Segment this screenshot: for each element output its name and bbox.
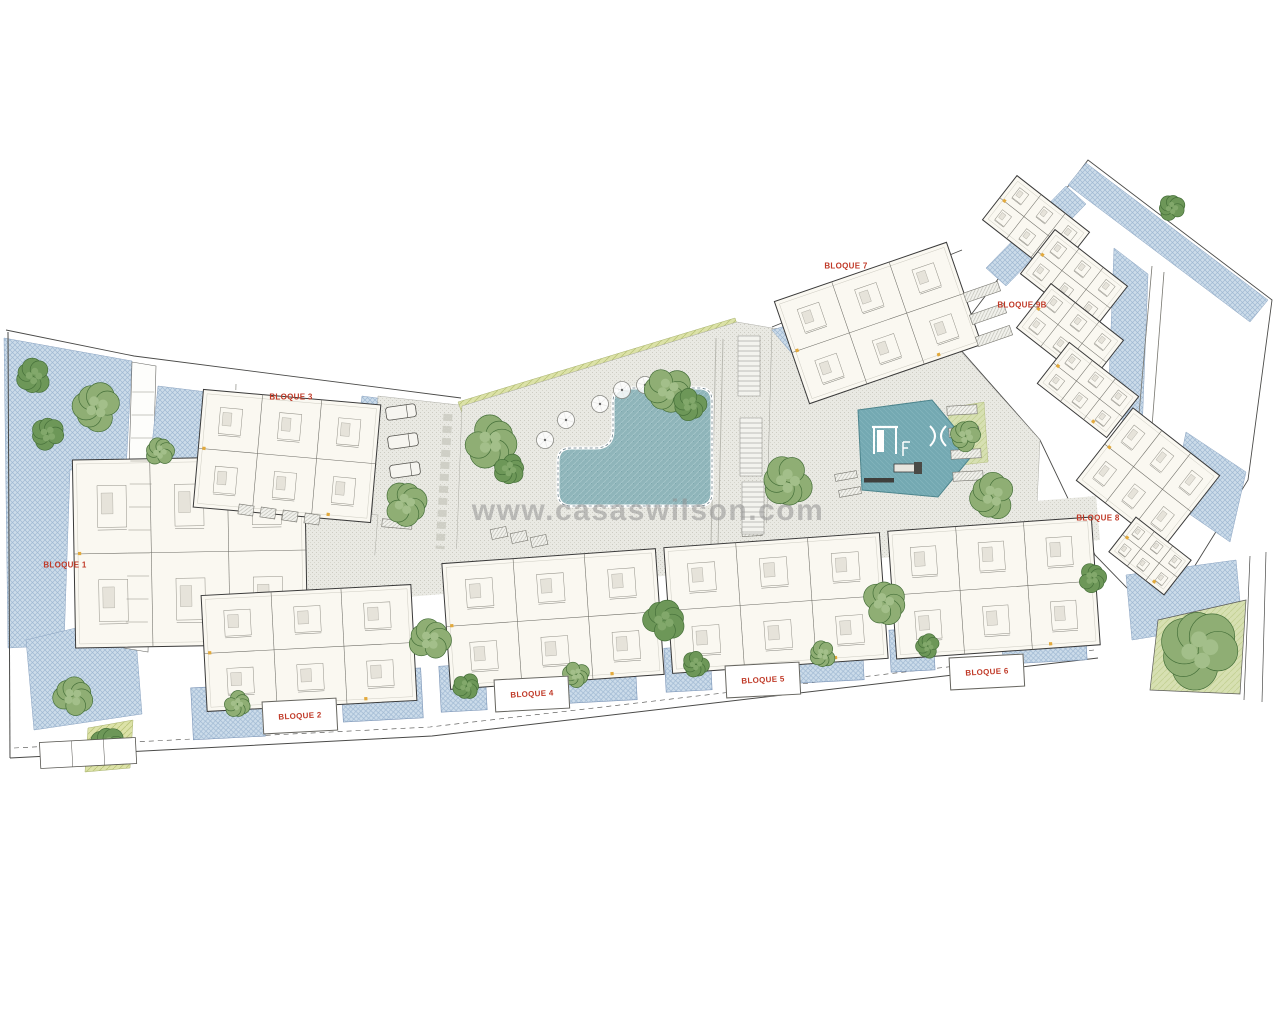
tree [810, 641, 835, 667]
site-plan-canvas: www.casaswilson.com BLOQUE 1 BLOQUE 2 BL… [0, 0, 1280, 1024]
bench [238, 504, 254, 516]
bloque-6-label: BLOQUE 6 [949, 654, 1026, 691]
bench [304, 513, 320, 525]
bloque-7-label: BLOQUE 7 [824, 262, 867, 271]
bloque-2-label: BLOQUE 2 [262, 698, 339, 735]
bloque-5-label: BLOQUE 5 [725, 662, 802, 699]
bloque-8-label: BLOQUE 8 [1076, 514, 1119, 523]
tree [409, 619, 451, 658]
bloque-3-label: BLOQUE 3 [269, 393, 312, 402]
bench [947, 405, 977, 416]
stairs [738, 336, 760, 396]
stairs [740, 418, 762, 476]
tree [453, 674, 479, 699]
bench [282, 510, 298, 522]
watermark: www.casaswilson.com [472, 494, 825, 528]
apartment-building [193, 389, 381, 522]
tree [1079, 564, 1106, 593]
parasol [536, 431, 553, 448]
bloque-1-label: BLOQUE 1 [43, 561, 86, 570]
bloque-4-label: BLOQUE 4 [494, 676, 571, 713]
bench [260, 507, 276, 519]
parking-bay [39, 738, 136, 769]
parasol [557, 411, 574, 428]
tree [1159, 196, 1184, 221]
apartment-building [442, 549, 664, 690]
parasol [613, 381, 630, 398]
parking-plaza [370, 396, 468, 565]
parasol [591, 395, 608, 412]
bloque-9-label: BLOQUE 9B [997, 301, 1046, 310]
